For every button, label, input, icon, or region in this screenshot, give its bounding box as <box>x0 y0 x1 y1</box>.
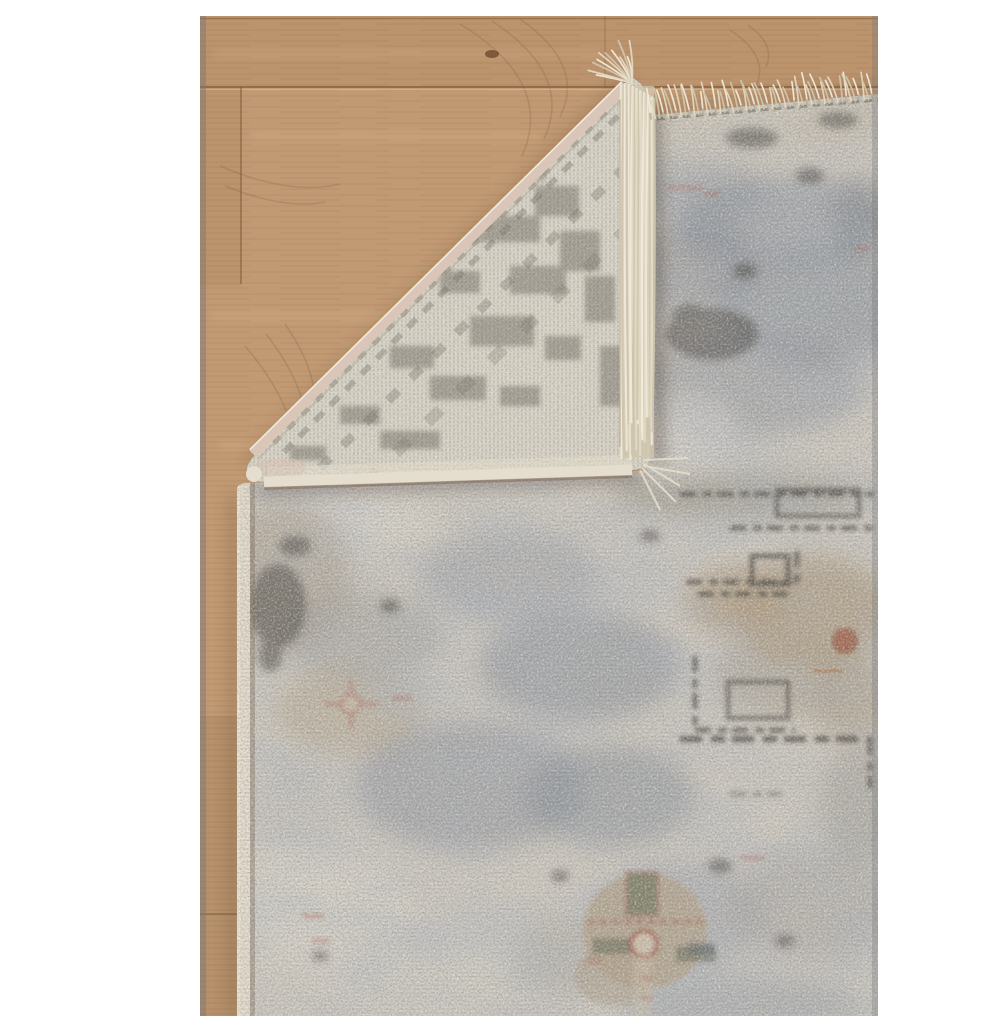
plank-left <box>200 87 241 286</box>
fold-fringe-band <box>620 84 655 460</box>
flap-corner-round <box>246 466 262 482</box>
photo-left-edge <box>200 16 206 1016</box>
product-photo <box>40 16 1000 1016</box>
rug-product-image <box>40 16 1000 1016</box>
wood-knot <box>485 50 499 58</box>
plank-top <box>200 16 878 87</box>
photo-right-edge <box>872 16 878 1016</box>
